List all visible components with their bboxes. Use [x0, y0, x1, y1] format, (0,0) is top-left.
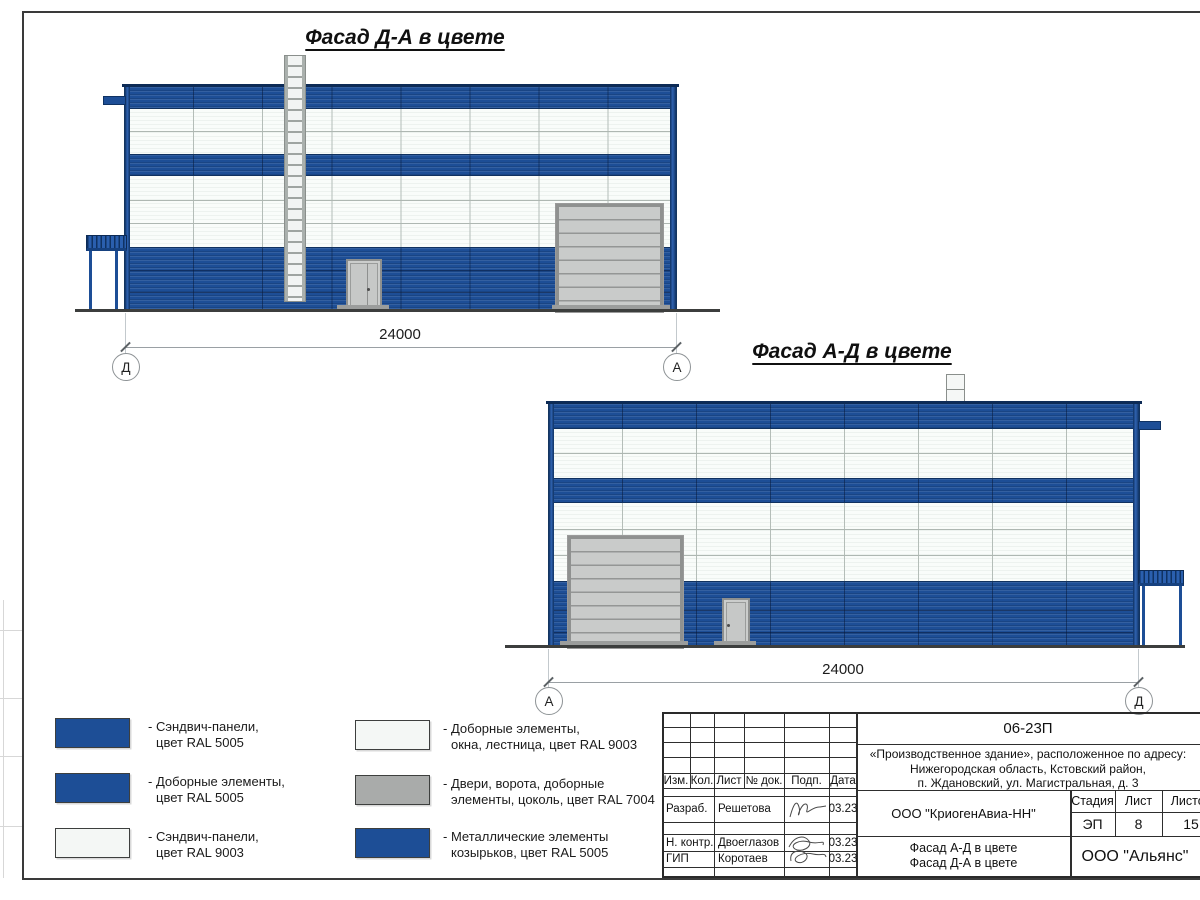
- title-block-line: [662, 727, 857, 728]
- corner-trim-left: [549, 403, 554, 646]
- legend-label: - Сэндвич-панели, цвет RAL 5005: [148, 719, 259, 750]
- stage-label: Стадия: [1070, 790, 1115, 812]
- panel-band-blue: [125, 86, 676, 109]
- legend-label: - Металлические элементы козырьков, цвет…: [443, 829, 608, 860]
- corner-trim-right: [670, 86, 676, 310]
- project-address-line: п. Ждановский, ул. Магистральная, д. 3: [858, 776, 1198, 791]
- roof-cap: [546, 401, 1142, 404]
- extension-line: [125, 313, 126, 358]
- title-block-line: [662, 822, 857, 823]
- ground-line: [75, 309, 720, 312]
- sheet-value: 8: [1115, 812, 1162, 836]
- legend-swatch: [355, 720, 430, 750]
- sign-row-name: Коротаев: [714, 851, 784, 867]
- ground-line: [505, 645, 1185, 648]
- axis-marker: А: [535, 687, 563, 715]
- canopy-roof: [86, 235, 127, 251]
- legend-label: - Доборные элементы, цвет RAL 5005: [148, 774, 285, 805]
- project-address-line: «Производственное здание», расположенное…: [858, 747, 1198, 762]
- sectional-gate: [568, 536, 683, 648]
- column-header-list: Лист: [714, 773, 744, 788]
- panel-joint: [550, 453, 1138, 454]
- legend-label-line2: элементы, цоколь, цвет RAL 7004: [443, 792, 655, 808]
- title-block-line: [662, 742, 857, 743]
- column-header-date: Дата: [829, 773, 857, 788]
- facade-da-title: Фасад Д-А в цвете: [240, 26, 570, 50]
- title-block-line: [856, 744, 1200, 745]
- corner-trim-left: [125, 86, 130, 310]
- canopy-leg: [1142, 586, 1145, 648]
- legend-label: - Сэндвич-панели, цвет RAL 9003: [148, 829, 259, 860]
- drawing-title-line: Фасад А-Д в цвете: [857, 841, 1070, 856]
- sign-row-name: Двоеглазов: [714, 834, 784, 851]
- door-handle: [727, 624, 730, 627]
- title-block-line: [662, 867, 857, 868]
- dimension-line: [548, 682, 1138, 683]
- drawing-title-line: Фасад Д-А в цвете: [857, 856, 1070, 871]
- facade-da-drawing: [124, 85, 677, 311]
- stage-value: ЭП: [1070, 812, 1115, 836]
- design-org: ООО "КриогенАвиа-НН": [857, 790, 1070, 836]
- title-block-line: [662, 788, 857, 789]
- canopy-leg: [115, 251, 118, 312]
- door-leaf: [350, 263, 378, 308]
- legend-swatch: [55, 718, 130, 748]
- roof-vent-joint: [947, 389, 964, 390]
- customer-company: ООО "Альянс": [1070, 836, 1200, 878]
- sheets-value: 15: [1162, 812, 1200, 836]
- legend-swatch: [355, 828, 430, 858]
- sign-row-date: 03.23: [829, 834, 857, 851]
- drawing-sheet: Фасад Д-А в цвете: [0, 0, 1200, 900]
- legend-label-line1: - Сэндвич-панели,: [148, 829, 259, 844]
- axis-marker: А: [663, 353, 691, 381]
- door-leaf: [726, 602, 746, 644]
- panel-band-blue: [549, 478, 1139, 503]
- canopy-leg: [1179, 586, 1182, 648]
- roof-ladder: [285, 56, 305, 301]
- panel-joint: [126, 200, 675, 201]
- parapet-ledge: [1138, 421, 1161, 430]
- legend-label-line1: - Металлические элементы: [443, 829, 608, 844]
- signature-scribble: [787, 798, 828, 821]
- margin-line-vertical: [3, 600, 4, 878]
- legend-label-line2: цвет RAL 5005: [148, 790, 285, 806]
- legend-label-line2: козырьков, цвет RAL 5005: [443, 845, 608, 861]
- column-header-sign: Подп.: [784, 773, 829, 788]
- document-number: 06-23П: [858, 712, 1198, 744]
- sectional-gate: [556, 204, 663, 312]
- axis-marker: Д: [1125, 687, 1153, 715]
- sign-row-date: 03.23: [829, 796, 857, 822]
- panel-band-blue: [549, 403, 1139, 429]
- column-header-doc: № док.: [744, 773, 784, 788]
- sign-row-role: Н. контр.: [662, 834, 714, 851]
- dimension-value: 24000: [743, 661, 943, 678]
- facade-ad-drawing: [548, 402, 1140, 647]
- legend-swatch: [55, 828, 130, 858]
- sign-row-role: ГИП: [662, 851, 714, 867]
- sheet-frame-bottom: [22, 878, 1200, 880]
- panel-band-white: [125, 109, 676, 154]
- sheets-label: Листов: [1162, 790, 1200, 812]
- dimension-value: 24000: [300, 326, 500, 343]
- facade-ad-title: Фасад А-Д в цвете: [690, 340, 1014, 364]
- drawing-titles: Фасад А-Д в цвете Фасад Д-А в цвете: [857, 841, 1070, 871]
- sheet-label: Лист: [1115, 790, 1162, 812]
- panel-joint: [126, 131, 675, 132]
- legend-label-line2: цвет RAL 5005: [148, 735, 259, 751]
- dimension-line: [125, 347, 676, 348]
- legend-label-line1: - Доборные элементы,: [148, 774, 285, 789]
- canopy-leg: [89, 251, 92, 312]
- canopy-roof: [1138, 570, 1184, 586]
- roof-vent: [946, 374, 965, 403]
- legend-label-line2: цвет RAL 9003: [148, 845, 259, 861]
- parapet-ledge: [103, 96, 126, 105]
- legend-swatch: [355, 775, 430, 805]
- axis-marker: Д: [112, 353, 140, 381]
- sign-row-date: 03.23: [829, 851, 857, 867]
- legend-swatch: [55, 773, 130, 803]
- sheet-frame-top: [22, 11, 1200, 13]
- panel-joint: [550, 529, 1138, 530]
- title-block-line: [662, 757, 857, 758]
- roof-cap: [122, 84, 679, 87]
- sign-row-role: Разраб.: [662, 796, 714, 822]
- signature-scribble: [785, 833, 829, 867]
- legend-label: - Двери, ворота, доборные элементы, цоко…: [443, 776, 655, 807]
- legend-label: - Доборные элементы, окна, лестница, цве…: [443, 721, 637, 752]
- column-header-izm: Изм.: [662, 773, 690, 788]
- sheet-frame-left: [22, 11, 24, 880]
- sign-row-name: Решетова: [714, 796, 784, 822]
- door-split: [367, 263, 368, 308]
- legend-label-line2: окна, лестница, цвет RAL 9003: [443, 737, 637, 753]
- panel-band-white: [549, 429, 1139, 478]
- extension-line: [676, 313, 677, 358]
- corner-trim-right: [1133, 403, 1139, 646]
- legend-label-line1: - Доборные элементы,: [443, 721, 580, 736]
- legend-label-line1: - Двери, ворота, доборные: [443, 776, 604, 791]
- project-address-line: Нижегородская область, Кстовский район,: [858, 762, 1198, 777]
- column-header-kol: Кол.: [690, 773, 714, 788]
- panel-band-blue: [125, 154, 676, 176]
- project-address: «Производственное здание», расположенное…: [858, 747, 1198, 791]
- door-handle: [367, 288, 370, 291]
- legend-label-line1: - Сэндвич-панели,: [148, 719, 259, 734]
